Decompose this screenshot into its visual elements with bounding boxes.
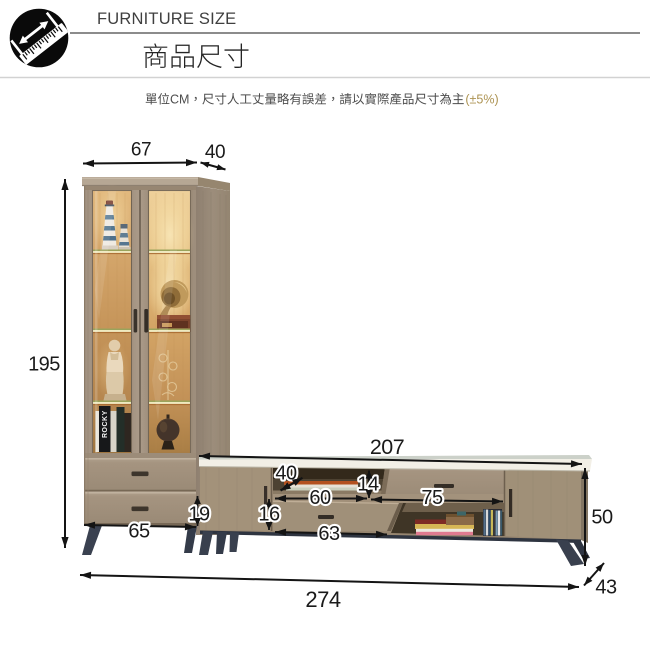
svg-text:19: 19 xyxy=(188,504,210,526)
svg-text:195: 195 xyxy=(28,354,60,376)
svg-text:65: 65 xyxy=(128,521,150,543)
svg-text:ROCKY: ROCKY xyxy=(102,410,109,438)
svg-text:207: 207 xyxy=(370,435,404,459)
svg-text:43: 43 xyxy=(595,577,617,599)
svg-text:274: 274 xyxy=(305,587,340,612)
svg-text:67: 67 xyxy=(131,140,151,161)
svg-text:63: 63 xyxy=(318,523,340,545)
svg-text:75: 75 xyxy=(421,487,443,509)
svg-text:40: 40 xyxy=(205,142,225,163)
svg-text:60: 60 xyxy=(309,487,331,509)
svg-text:FURNITURE SIZE: FURNITURE SIZE xyxy=(97,10,236,28)
svg-text:CM: CM xyxy=(170,93,189,107)
svg-text:50: 50 xyxy=(591,507,613,529)
svg-text:(±5%): (±5%) xyxy=(465,93,498,107)
